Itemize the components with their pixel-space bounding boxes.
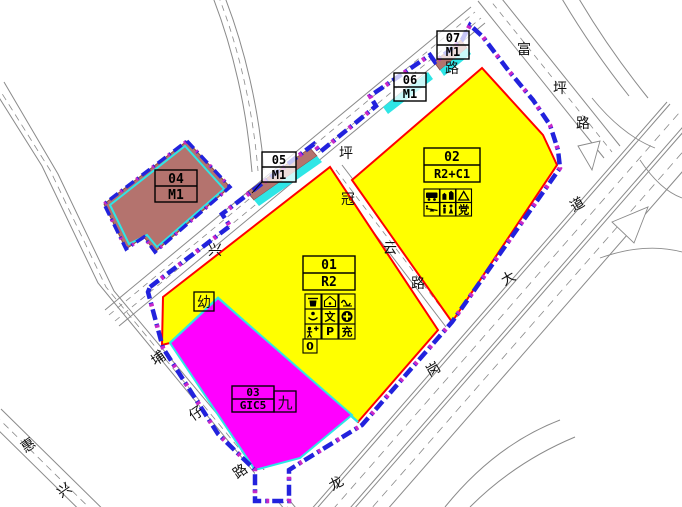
parcel-04-id: 04: [168, 172, 184, 187]
party-service-icon: 党: [458, 203, 469, 217]
charging-station-icon: 充: [342, 325, 353, 339]
parcel-05-id: 05: [272, 153, 286, 167]
culture-icon: 文: [325, 310, 337, 324]
parcel-04-code: M1: [168, 188, 184, 203]
xingping-char-2: 坪: [339, 146, 353, 162]
parcel-03-code: GIC5: [240, 399, 267, 412]
fuping-char-1: 富: [517, 41, 531, 58]
guanyun-char-1: 冠: [341, 192, 355, 208]
longgang-char-3: 大: [498, 268, 518, 289]
parcel-06-label: 06 M1: [394, 73, 426, 101]
medical-icon: [342, 311, 353, 322]
parcel-07-id: 07: [446, 31, 460, 45]
map-canvas: 01 R2 02 R2+C1 03 GIC5 04 M1: [0, 0, 682, 507]
xingping-char-1: 兴: [208, 243, 222, 259]
longgang-char-1: 龙: [326, 473, 346, 494]
fuping-char-3: 路: [576, 116, 590, 132]
parcel-02-code: R2+C1: [434, 167, 470, 181]
parking-icon: P: [326, 325, 334, 338]
xingping-char-3: 路: [445, 61, 459, 77]
parcel-04: [104, 141, 230, 252]
parcel-01-id: 01: [321, 258, 337, 273]
south-stub: [255, 470, 289, 500]
fuping-char-2: 坪: [553, 81, 567, 97]
guanyun-char-2: 云: [383, 241, 397, 257]
parcel-03-id: 03: [246, 386, 259, 399]
north-access-road-lines: [212, 0, 264, 172]
zero-marker-icon: 0: [306, 340, 314, 353]
huixing-char-2: 兴: [54, 480, 75, 501]
parcel-01-code: R2: [321, 275, 337, 290]
guanyun-char-3: 路: [411, 276, 425, 292]
parcel-02-id: 02: [444, 150, 460, 165]
parcel-05-code: M1: [272, 168, 286, 182]
parcel-07-label: 07 M1: [437, 31, 469, 59]
parcel-06-id: 06: [403, 73, 417, 87]
parcel-07-code: M1: [446, 45, 460, 59]
parcel-06-code: M1: [403, 87, 417, 101]
planning-map: 01 R2 02 R2+C1 03 GIC5 04 M1: [0, 0, 682, 507]
puzai-char-2: 仔: [186, 403, 207, 424]
kindergarten-glyph: 幼: [197, 295, 211, 311]
nine-year-school-glyph: 九: [277, 394, 292, 412]
